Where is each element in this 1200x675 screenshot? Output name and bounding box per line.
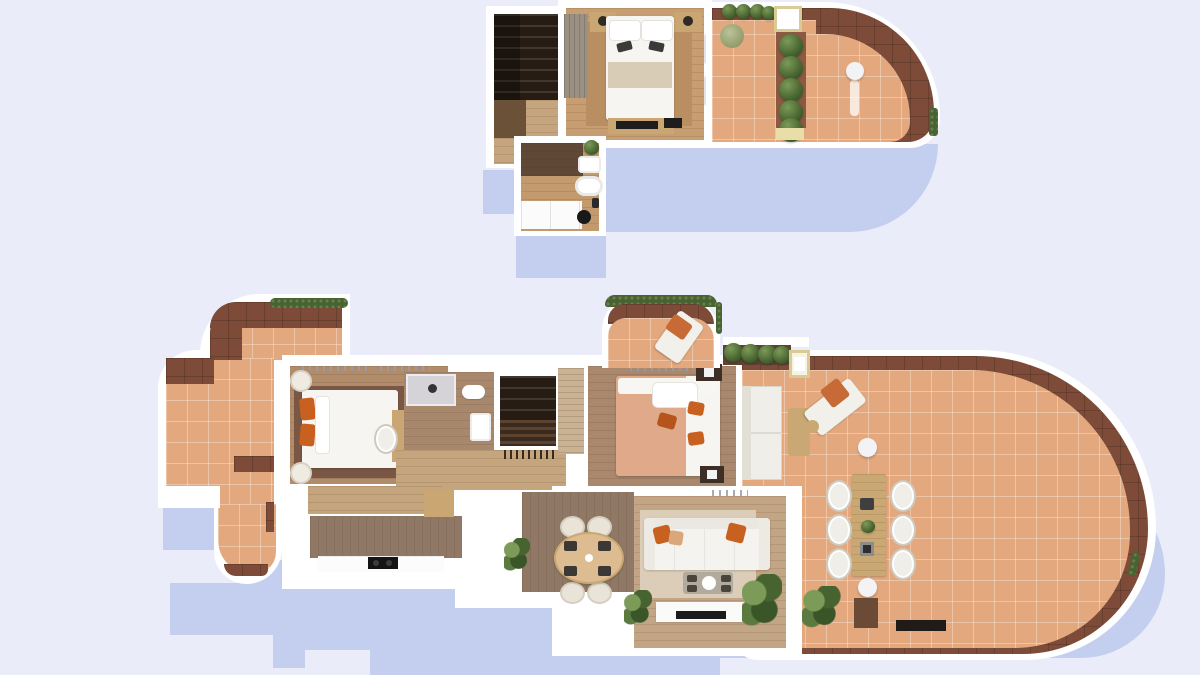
placemat (598, 566, 611, 576)
faucet (592, 198, 599, 208)
table-tray (860, 542, 874, 556)
centerpiece (585, 554, 593, 562)
bathroom-dark-floor (521, 143, 583, 176)
topiary-bush (779, 78, 803, 102)
bed-throw (608, 62, 672, 88)
pillow-orange (299, 423, 316, 446)
shower-drain (428, 384, 437, 393)
hedge-bush (736, 4, 751, 19)
dark-step (896, 620, 946, 631)
building-shadow (163, 505, 218, 550)
round-side-table (806, 420, 819, 433)
burner (373, 560, 379, 566)
table-bowl (860, 498, 874, 510)
outdoor-sofa-back (742, 386, 751, 480)
closet-hangers (712, 490, 748, 496)
white-stool (858, 438, 877, 457)
burner (386, 560, 392, 566)
television (616, 121, 658, 129)
toilet (462, 385, 485, 399)
dining-chair (890, 548, 916, 580)
wall-notch (158, 486, 220, 508)
white-planter-box (774, 6, 802, 32)
pillow-orange (687, 401, 705, 417)
building-shadow (604, 144, 938, 232)
walkway-strip (854, 598, 878, 628)
placemat (564, 541, 577, 551)
nightstand-drawer (704, 368, 714, 377)
round-side-table (290, 462, 312, 484)
pillow (609, 20, 641, 41)
pillow (315, 396, 330, 454)
pillow-orange (687, 431, 705, 446)
dining-chair (826, 548, 852, 580)
hedge (270, 298, 348, 308)
dining-chair (587, 582, 612, 604)
table-stool (687, 585, 697, 592)
dining-chair (826, 480, 852, 512)
stair-lower-treads (500, 420, 556, 446)
dark-tile-border (166, 358, 214, 384)
pillow-orange (299, 397, 316, 420)
table-highlight (850, 80, 859, 116)
topiary-bush (779, 56, 803, 80)
sofa-seam (751, 432, 782, 434)
round-side-table (846, 62, 864, 80)
plant (624, 590, 652, 626)
sofa-arm (759, 518, 770, 570)
pillow (641, 20, 673, 41)
black-stool (577, 210, 591, 224)
table-stool (687, 575, 697, 582)
stair-mid-landing (494, 100, 526, 140)
kitchen-floor-strip (308, 486, 442, 514)
bathtub (575, 176, 603, 196)
plant (584, 140, 599, 155)
plant (742, 574, 782, 628)
washbasin (470, 413, 491, 441)
table-stool (721, 575, 731, 582)
stair-dark-column (494, 14, 520, 102)
table-lamp (683, 16, 693, 26)
plant (504, 538, 530, 572)
dining-chair (826, 514, 852, 546)
dining-chair (890, 480, 916, 512)
island-counter (310, 516, 462, 558)
wardrobe (564, 14, 588, 98)
plant (802, 586, 842, 628)
table-plant (861, 520, 875, 533)
floor-plan-render (0, 0, 1200, 675)
table-stool (721, 585, 731, 592)
small-tree (720, 24, 744, 48)
stair-railing (504, 450, 558, 459)
nightstand-drawer (707, 470, 717, 479)
vanity-cabinet (521, 201, 582, 229)
washbasin (578, 156, 601, 173)
placemat (564, 566, 577, 576)
dark-tile-border (224, 564, 268, 576)
white-stool (858, 578, 877, 597)
placemat (598, 541, 611, 551)
base-cabinet (424, 490, 454, 517)
dark-tile-border (266, 502, 274, 532)
dining-chair (560, 582, 585, 604)
topiary-bush (779, 34, 803, 58)
hall-wardrobe (558, 368, 584, 454)
planter-end-cap (776, 128, 804, 140)
round-side-table (290, 370, 312, 392)
pillow-tan (668, 530, 684, 546)
green-edge (716, 302, 722, 334)
green-edge (929, 108, 938, 136)
desk-chair (374, 424, 398, 454)
closet-hangers (380, 366, 430, 371)
table-plate (702, 576, 716, 590)
bench (664, 118, 682, 128)
building-shadow (516, 230, 606, 278)
dark-tile-border (234, 456, 274, 472)
television (676, 611, 726, 619)
closet-hangers (302, 366, 372, 371)
planter-box-center (794, 357, 805, 371)
dining-chair (890, 514, 916, 546)
sofa-arm (644, 518, 655, 570)
hedge-bush (722, 4, 737, 19)
